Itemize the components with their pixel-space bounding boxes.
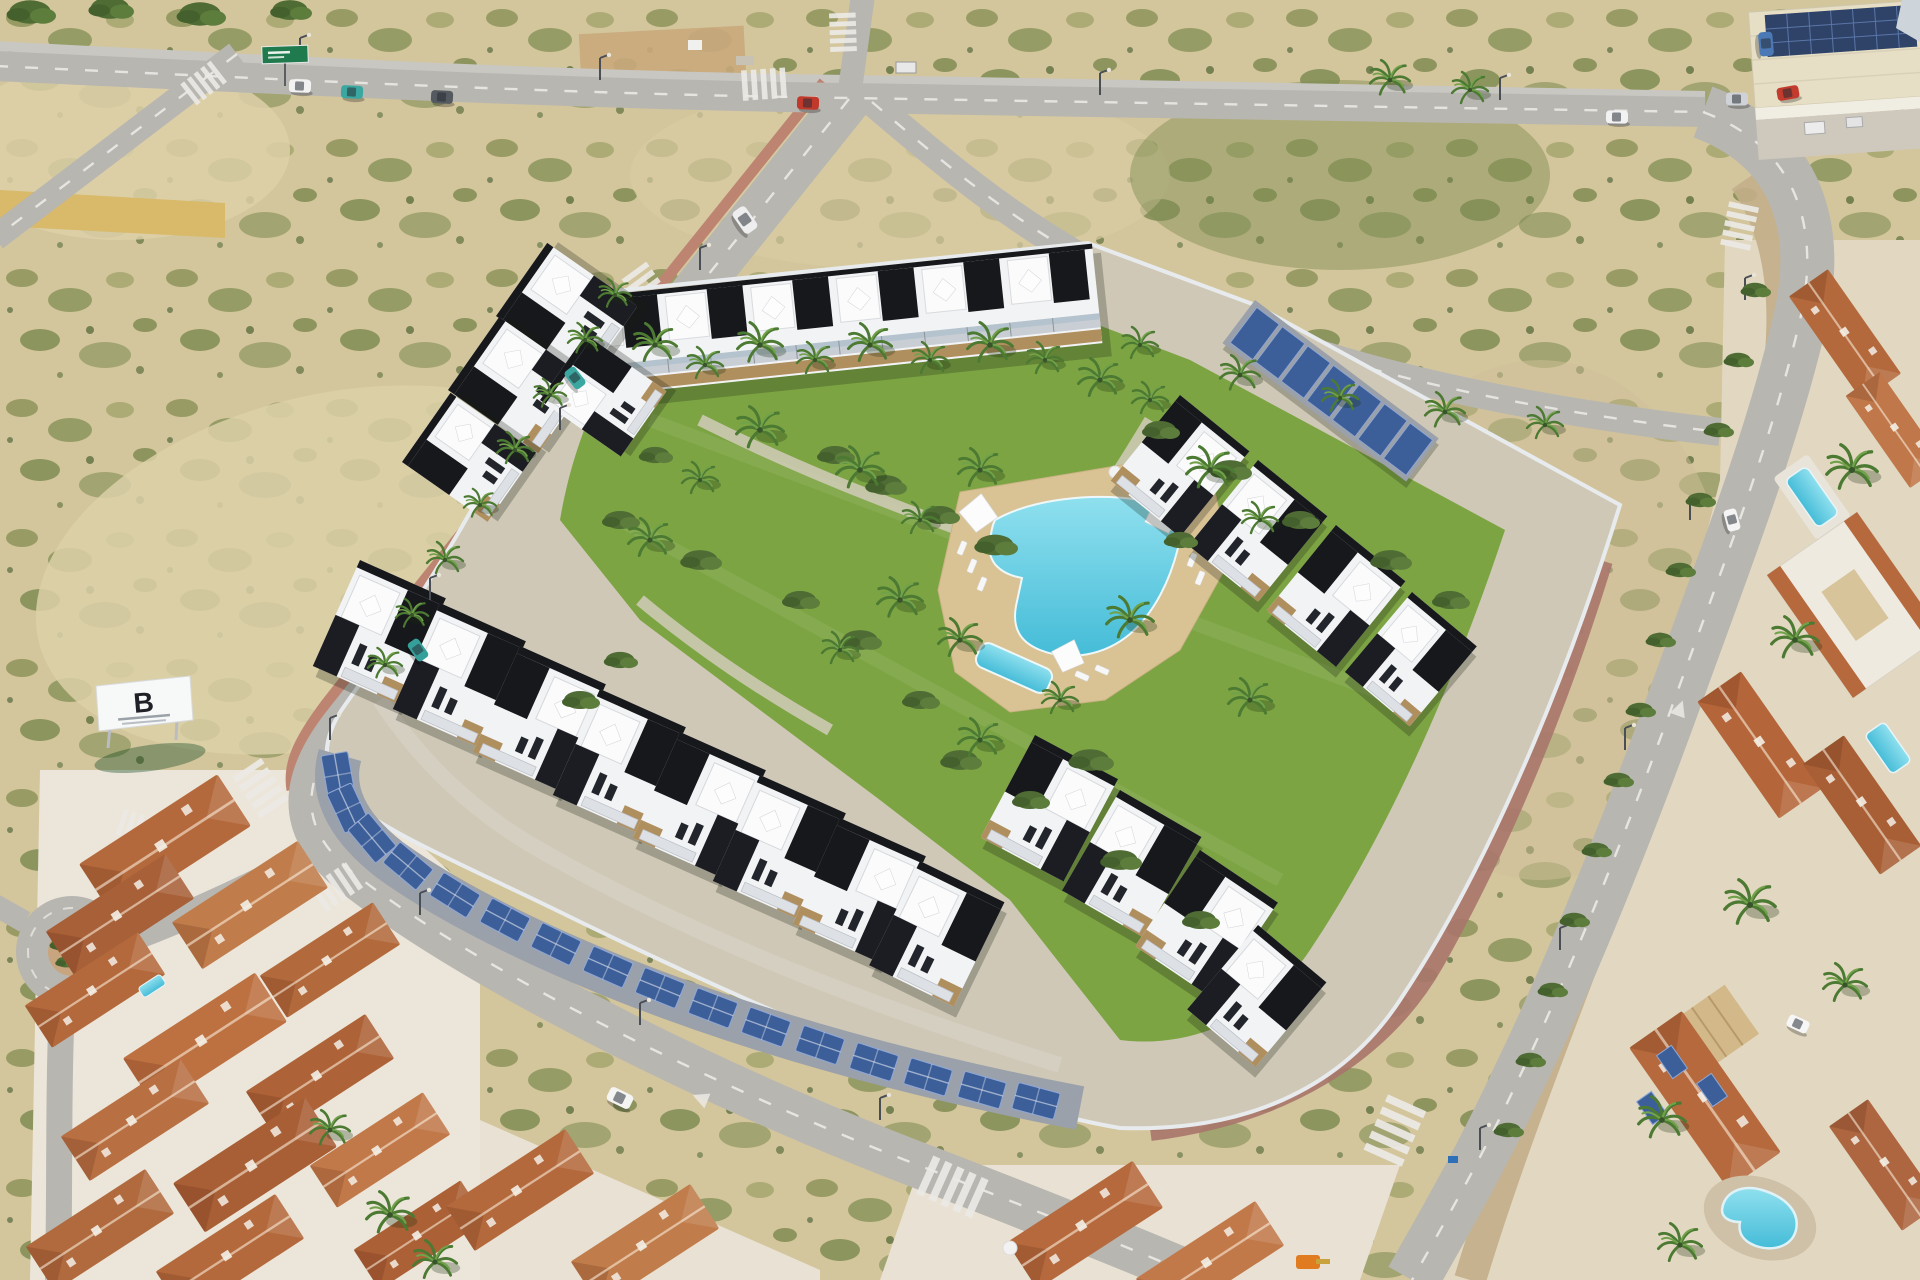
car [1726,93,1750,110]
car [797,96,822,113]
patio-parasol [1003,1241,1017,1255]
bus-shelter [896,62,916,73]
billboard-logo: B [132,686,155,719]
kiosk [1846,117,1863,128]
green-direction-sign [262,45,309,64]
car [289,79,314,96]
site-container [736,56,754,65]
traffic-sign [1448,1156,1458,1163]
industrial-warehouse [1748,0,1920,160]
truck [1754,31,1774,59]
car [430,90,455,108]
site-shed [688,40,702,50]
car [1606,110,1630,127]
car [340,85,365,103]
kiosk [1804,121,1825,134]
aerial-scene: B [0,0,1920,1280]
aerial-photo: B [0,0,1920,1280]
